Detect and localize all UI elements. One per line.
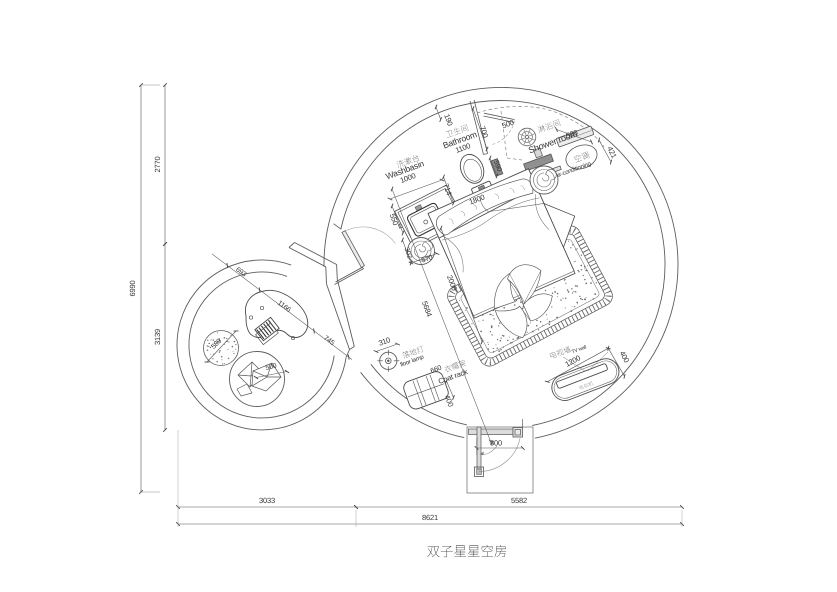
svg-text:8621: 8621 — [422, 513, 438, 522]
svg-text:2770: 2770 — [153, 157, 162, 173]
svg-text:3139: 3139 — [153, 329, 162, 345]
svg-text:3033: 3033 — [259, 496, 275, 505]
svg-text:6990: 6990 — [128, 281, 137, 297]
svg-text:5582: 5582 — [511, 496, 527, 505]
